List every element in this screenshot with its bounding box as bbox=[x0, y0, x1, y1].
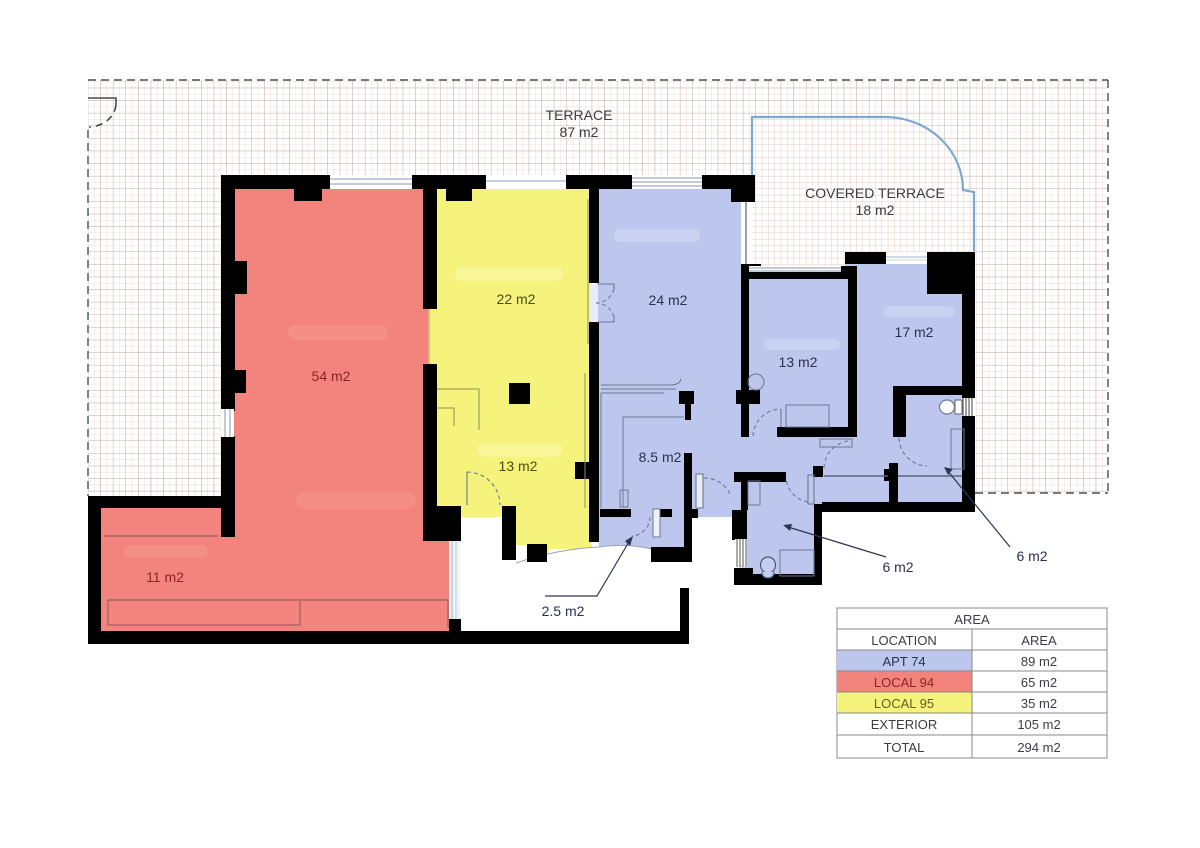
svg-text:TERRACE: TERRACE bbox=[546, 107, 613, 123]
svg-text:11 m2: 11 m2 bbox=[146, 569, 184, 585]
svg-text:18 m2: 18 m2 bbox=[856, 202, 895, 218]
svg-text:6 m2: 6 m2 bbox=[882, 559, 913, 575]
svg-text:AREA: AREA bbox=[954, 612, 990, 627]
svg-text:54 m2: 54 m2 bbox=[312, 368, 351, 384]
svg-text:8.5 m2: 8.5 m2 bbox=[639, 449, 682, 465]
svg-text:LOCAL 94: LOCAL 94 bbox=[874, 675, 934, 690]
svg-text:TOTAL: TOTAL bbox=[884, 740, 925, 755]
svg-text:LOCATION: LOCATION bbox=[871, 633, 937, 648]
svg-text:AREA: AREA bbox=[1021, 633, 1057, 648]
svg-text:294 m2: 294 m2 bbox=[1017, 740, 1060, 755]
svg-text:17 m2: 17 m2 bbox=[895, 324, 934, 340]
svg-text:13 m2: 13 m2 bbox=[779, 354, 818, 370]
svg-text:2.5 m2: 2.5 m2 bbox=[542, 603, 585, 619]
svg-text:13 m2: 13 m2 bbox=[499, 458, 538, 474]
svg-text:65 m2: 65 m2 bbox=[1021, 675, 1057, 690]
svg-text:LOCAL 95: LOCAL 95 bbox=[874, 696, 934, 711]
svg-text:22 m2: 22 m2 bbox=[497, 291, 536, 307]
svg-text:6 m2: 6 m2 bbox=[1016, 548, 1047, 564]
svg-text:EXTERIOR: EXTERIOR bbox=[871, 717, 937, 732]
svg-text:APT 74: APT 74 bbox=[882, 654, 925, 669]
svg-text:COVERED TERRACE: COVERED TERRACE bbox=[805, 185, 945, 201]
svg-text:105 m2: 105 m2 bbox=[1017, 717, 1060, 732]
svg-text:24 m2: 24 m2 bbox=[649, 292, 688, 308]
svg-text:35 m2: 35 m2 bbox=[1021, 696, 1057, 711]
svg-text:89 m2: 89 m2 bbox=[1021, 654, 1057, 669]
svg-text:87 m2: 87 m2 bbox=[560, 124, 599, 140]
